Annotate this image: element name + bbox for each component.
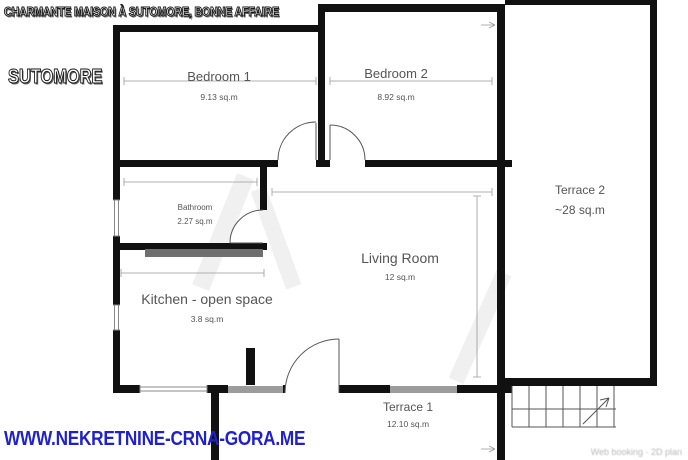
wall <box>113 160 278 167</box>
room-label-kitchen: Kitchen - open space <box>141 291 273 307</box>
window <box>113 200 120 236</box>
website-url: WWW.NEKRETNINE-CRNA-GORA.ME <box>4 427 305 451</box>
wall <box>113 25 120 200</box>
floorplan-canvas: Bedroom 1 9.13 sq.m Bedroom 2 8.92 sq.m … <box>0 0 688 460</box>
room-area-living-room: 12 sq.m <box>385 272 415 282</box>
wall <box>650 0 657 386</box>
room-label-terrace2: Terrace 2 <box>555 183 605 197</box>
location-label: SUTOMORE <box>8 66 102 89</box>
floorplan-drawing <box>0 0 688 460</box>
door-arc <box>278 122 316 160</box>
stairs-direction-arrow <box>583 398 609 424</box>
room-label-bathroom: Bathroom <box>178 203 213 212</box>
kitchen-counter <box>145 249 263 257</box>
fineprint-watermark-text: Web booking · 2D plan <box>591 447 682 457</box>
room-label-bedroom1: Bedroom 1 <box>187 69 251 84</box>
pointer-arrow <box>481 446 495 452</box>
door-arc <box>330 125 365 160</box>
wall <box>113 385 140 393</box>
wall <box>113 25 325 32</box>
wall <box>505 378 657 386</box>
room-area-terrace2: ~28 sq.m <box>555 203 605 217</box>
door-arc <box>230 210 263 243</box>
wall <box>318 4 325 163</box>
room-area-bedroom2: 8.92 sq.m <box>377 92 414 102</box>
wall <box>113 330 120 392</box>
window-gray <box>228 386 283 393</box>
wall <box>318 4 505 12</box>
wall <box>113 243 267 250</box>
room-label-living-room: Living Room <box>361 250 439 266</box>
room-area-bathroom: 2.27 sq.m <box>177 217 212 226</box>
window <box>113 305 120 330</box>
wall <box>316 160 330 167</box>
listing-title: CHARMANTE MAISON À SUTOMORE, BONNE AFFAI… <box>4 4 279 19</box>
wall <box>457 385 512 393</box>
wall <box>260 163 267 210</box>
room-label-terrace1: Terrace 1 <box>383 400 433 414</box>
window <box>140 385 207 393</box>
room-label-bedroom2: Bedroom 2 <box>364 66 428 81</box>
wall <box>339 385 390 393</box>
wall <box>505 0 657 5</box>
wall <box>365 160 512 167</box>
wall <box>207 385 228 393</box>
room-area-bedroom1: 9.13 sq.m <box>200 92 237 102</box>
room-area-kitchen: 3.8 sq.m <box>191 314 224 324</box>
room-area-terrace1: 12.10 sq.m <box>387 419 429 429</box>
wall <box>246 348 255 385</box>
door-arc <box>285 339 339 393</box>
stairs <box>512 386 616 427</box>
pointer-arrow <box>481 22 495 28</box>
window-gray <box>390 386 457 393</box>
